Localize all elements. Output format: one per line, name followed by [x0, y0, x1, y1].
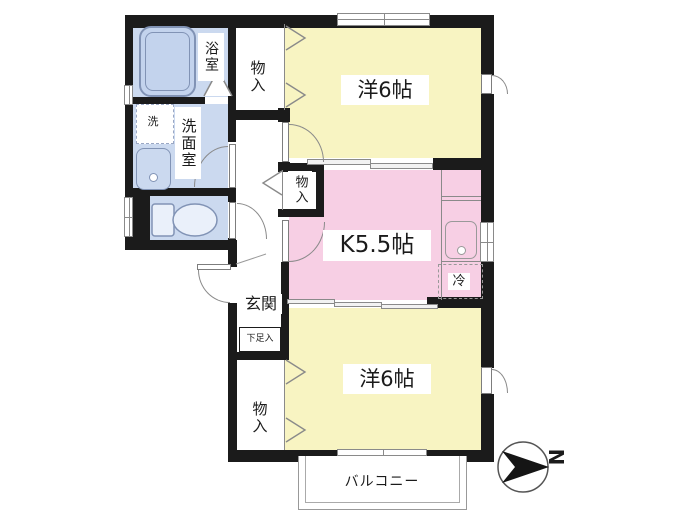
entrance-label: 玄関 [240, 294, 282, 314]
kitchen-sink [445, 221, 477, 259]
kitchen-counter-line [441, 200, 481, 201]
wall [281, 262, 289, 358]
balcony-label: バルコニー [336, 473, 428, 490]
closet-bottom-label: 物入 [247, 390, 271, 446]
refrigerator-label: 冷 [448, 273, 470, 290]
western-room-bottom-label: 洋6帖 [343, 364, 431, 394]
window [124, 197, 133, 237]
wall [278, 108, 290, 122]
compass-north-label: N [546, 447, 566, 467]
window [480, 222, 494, 262]
window [337, 13, 430, 26]
toilet-fixture [148, 198, 226, 242]
shoe-cabinet-label: 下足入 [246, 335, 273, 344]
wall [228, 238, 236, 250]
door-leaf [481, 74, 492, 94]
shoe-cabinet: 下足入 [239, 327, 281, 352]
western-room-top-label: 洋6帖 [341, 75, 429, 105]
door-leaf [229, 202, 236, 239]
door-leaf [481, 367, 492, 394]
door-leaf [282, 220, 289, 262]
sliding-door-panel [381, 304, 438, 309]
closet-chevron-icon [285, 81, 307, 109]
wall [433, 158, 481, 170]
washroom-label: 洗面室 [175, 107, 201, 179]
floorplan: 下足入 浴室 洗 洗面室 物入 物入 物入 洋6帖 K5.5帖 冷 玄関 洋6帖… [0, 0, 700, 525]
wall [278, 209, 324, 217]
wall [481, 94, 494, 222]
washing-machine-label: 洗 [143, 112, 163, 130]
kitchen-counter-line [441, 196, 481, 197]
wall [228, 303, 237, 462]
wall [236, 110, 283, 120]
sliding-door-panel [287, 299, 335, 304]
closet-chevron-icon [285, 24, 307, 52]
sliding-door-panel [334, 302, 382, 307]
closet-chevron-icon [261, 169, 283, 197]
wall [228, 188, 236, 202]
bath-label: 浴室 [198, 33, 224, 81]
door-arc [198, 270, 230, 303]
door-leaf [229, 144, 236, 188]
kitchen-counter-line [441, 261, 481, 262]
wall [125, 105, 133, 197]
window [124, 85, 133, 105]
door-arc [492, 369, 508, 393]
wall [481, 15, 494, 75]
compass-arrow-icon [502, 451, 549, 483]
washbasin [136, 148, 171, 190]
closet-top-label: 物入 [245, 50, 269, 104]
kitchen-label: K5.5帖 [323, 230, 431, 261]
entrance-step-line [235, 250, 267, 266]
closet-chevron-icon [285, 416, 307, 444]
door-leaf [282, 122, 289, 162]
door-arc [492, 75, 508, 94]
door-arc [237, 203, 267, 239]
sliding-door-panel [370, 163, 433, 169]
closet-chevron-icon [285, 358, 307, 386]
wall [133, 97, 205, 104]
wall [237, 352, 289, 360]
wall [125, 15, 133, 85]
closet-middle-label: 物入 [288, 171, 312, 209]
bathtub [139, 26, 196, 97]
